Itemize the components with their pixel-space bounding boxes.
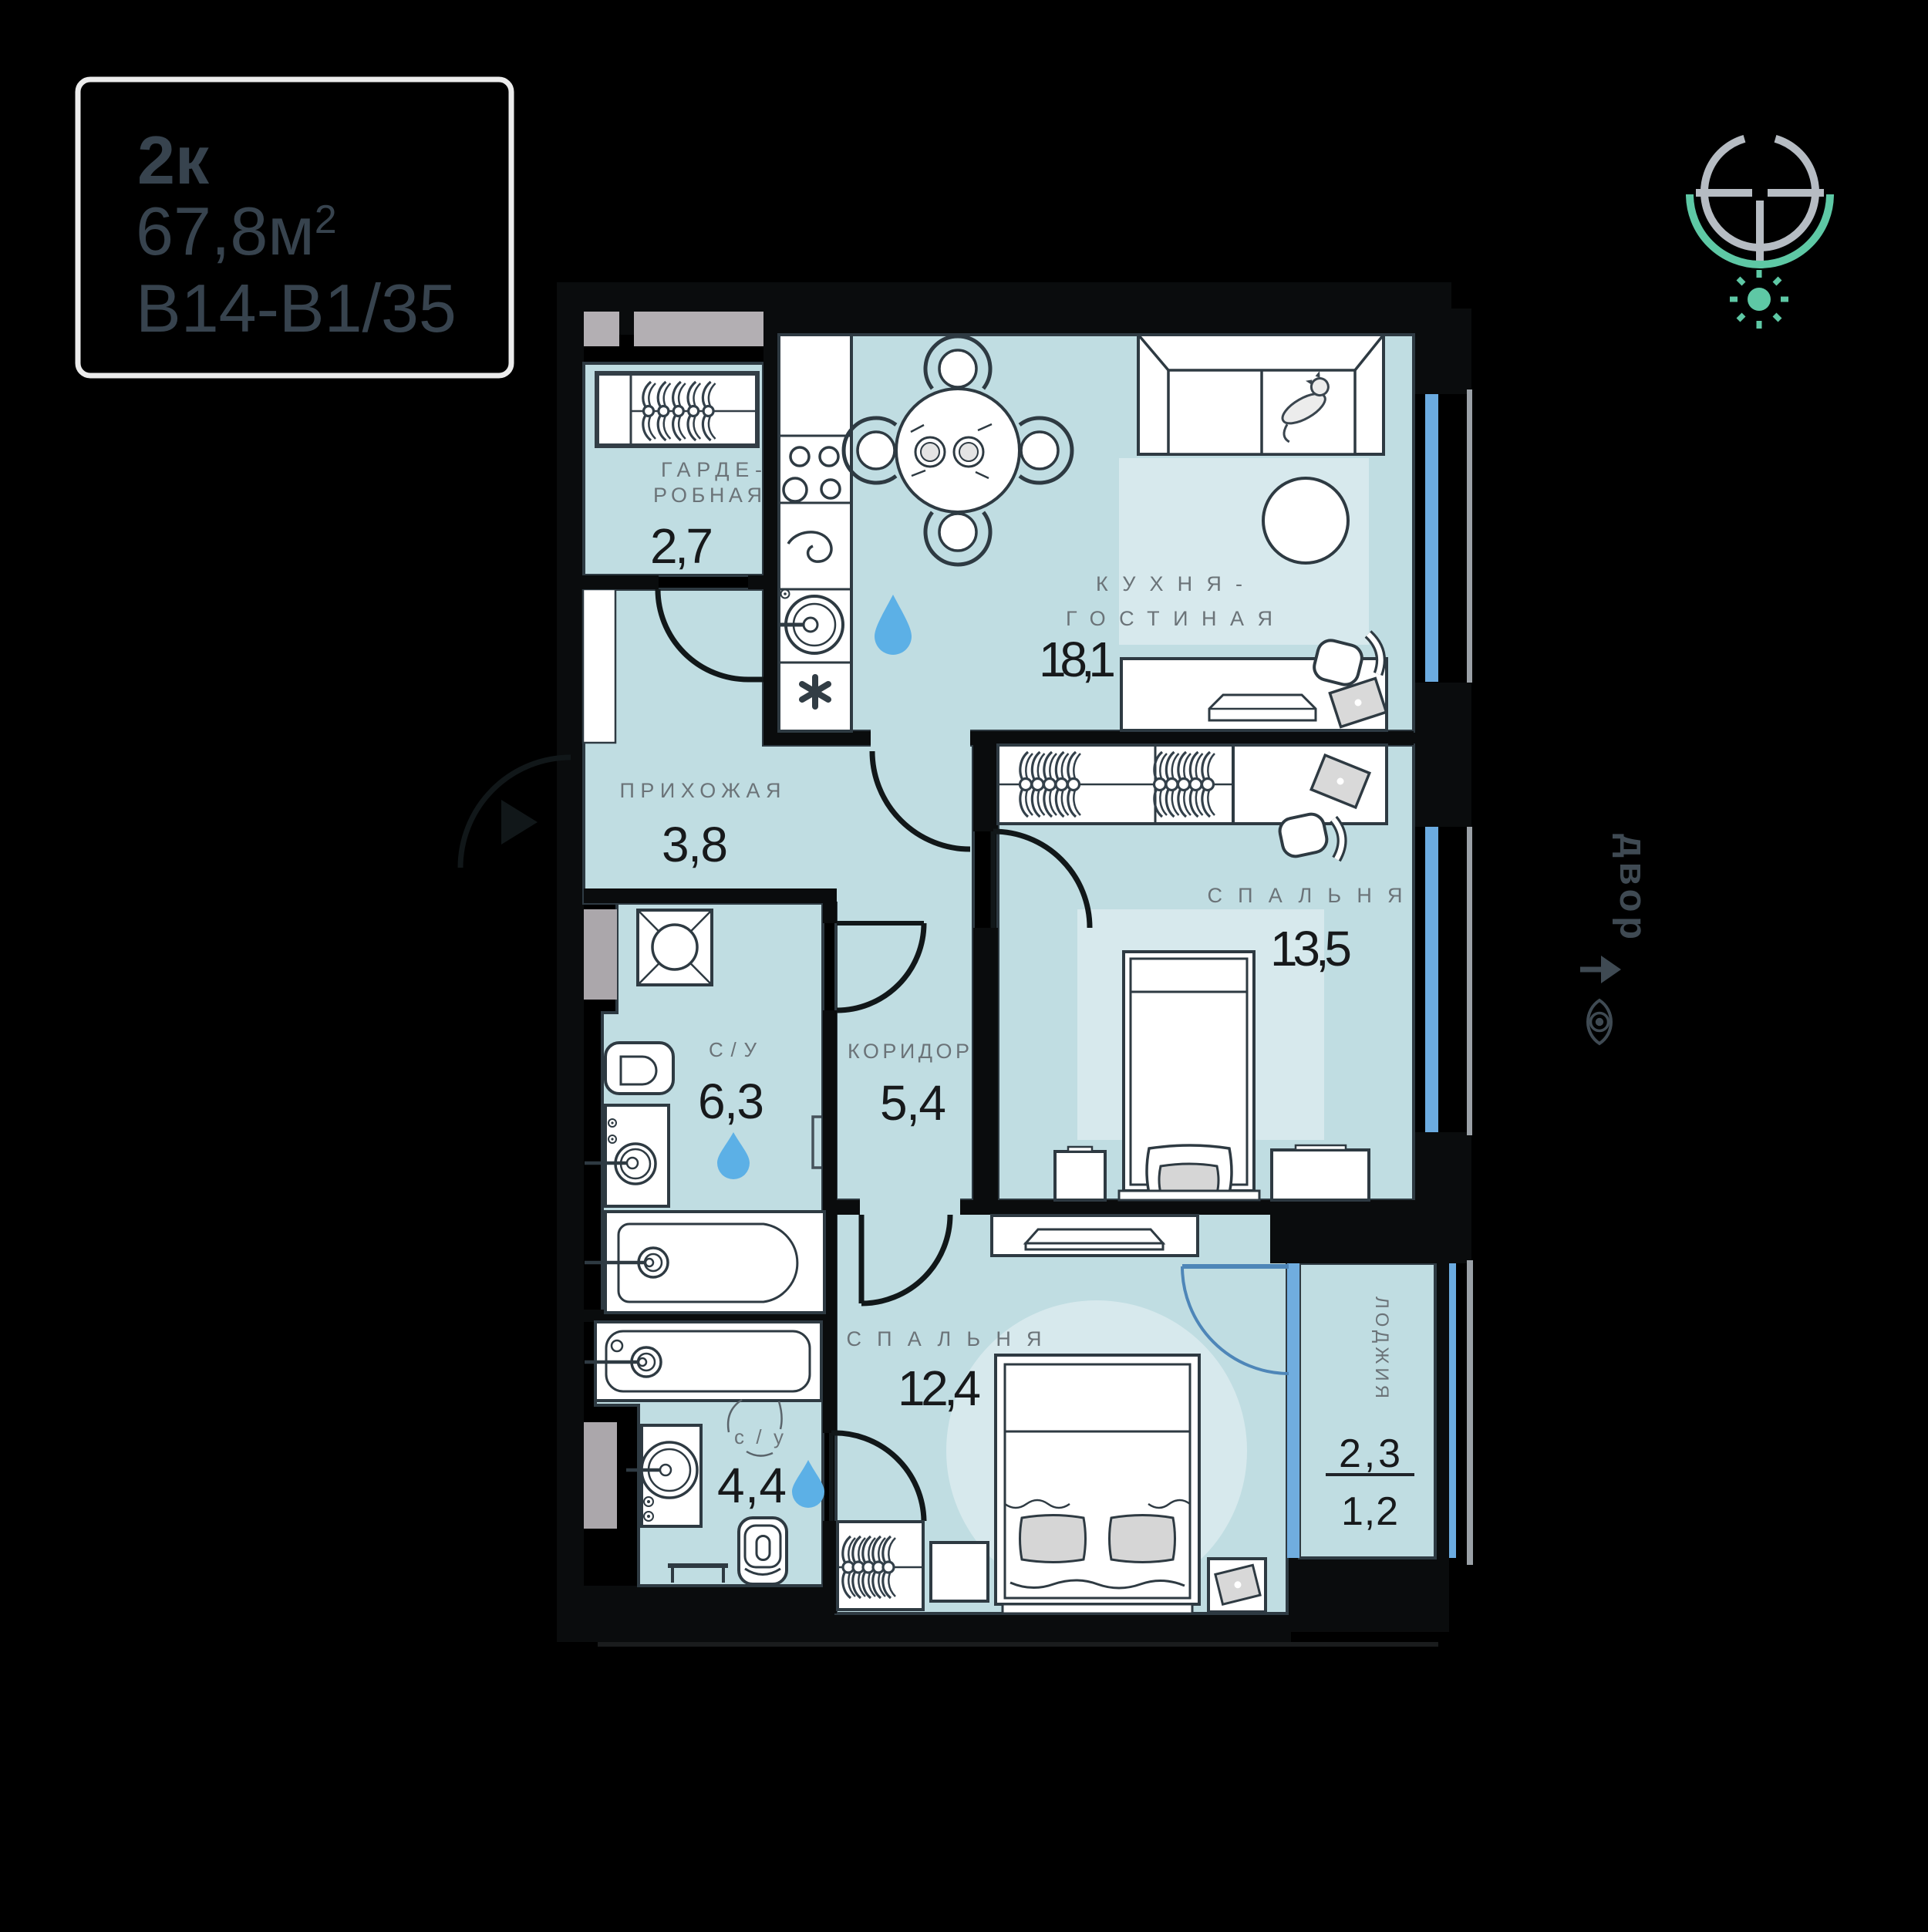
svg-text:5,4: 5,4 xyxy=(880,1075,946,1131)
svg-text:2,7: 2,7 xyxy=(650,518,713,574)
svg-text:2,3: 2,3 xyxy=(1339,1431,1400,1476)
svg-text:18,1: 18,1 xyxy=(1039,632,1116,687)
svg-text:4,4: 4,4 xyxy=(717,1458,787,1513)
svg-text:13,5: 13,5 xyxy=(1270,921,1352,976)
svg-text:6,3: 6,3 xyxy=(698,1074,764,1129)
svg-text:3,8: 3,8 xyxy=(662,817,728,872)
svg-text:КОРИДОР: КОРИДОР xyxy=(848,1040,969,1063)
svg-text:12,4: 12,4 xyxy=(898,1360,981,1416)
svg-text:с/у: с/у xyxy=(734,1425,784,1448)
svg-text:ПРИХОЖАЯ: ПРИХОЖАЯ xyxy=(620,779,781,802)
svg-text:67,8м2: 67,8м2 xyxy=(136,193,337,269)
svg-text:С/У: С/У xyxy=(709,1038,757,1061)
svg-text:1,2: 1,2 xyxy=(1341,1489,1398,1534)
svg-text:2к: 2к xyxy=(137,122,210,198)
svg-text:В14-В1/35: В14-В1/35 xyxy=(136,270,457,346)
